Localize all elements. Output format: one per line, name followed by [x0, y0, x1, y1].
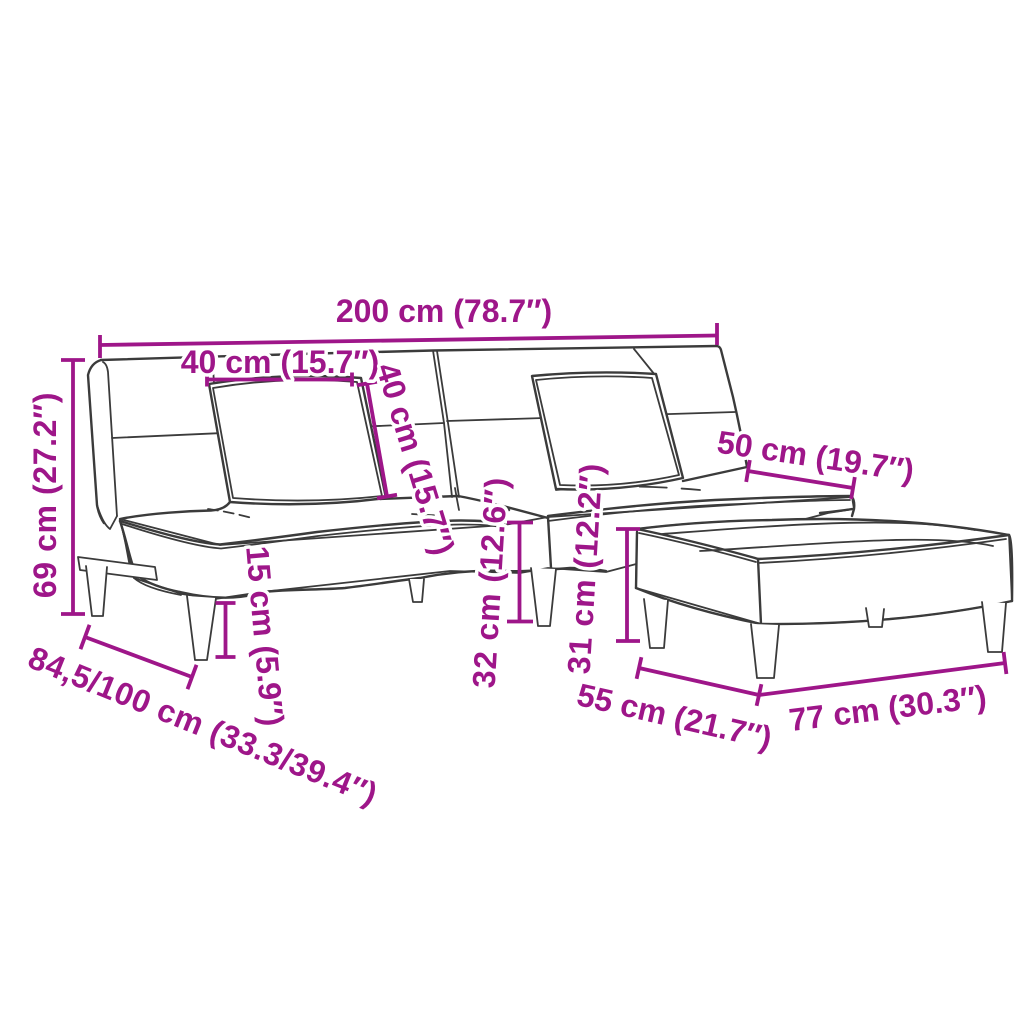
svg-text:40 cm (15.7″): 40 cm (15.7″) — [181, 344, 380, 380]
svg-text:200 cm (78.7″): 200 cm (78.7″) — [336, 293, 552, 329]
svg-text:69 cm (27.2″): 69 cm (27.2″) — [27, 392, 63, 598]
